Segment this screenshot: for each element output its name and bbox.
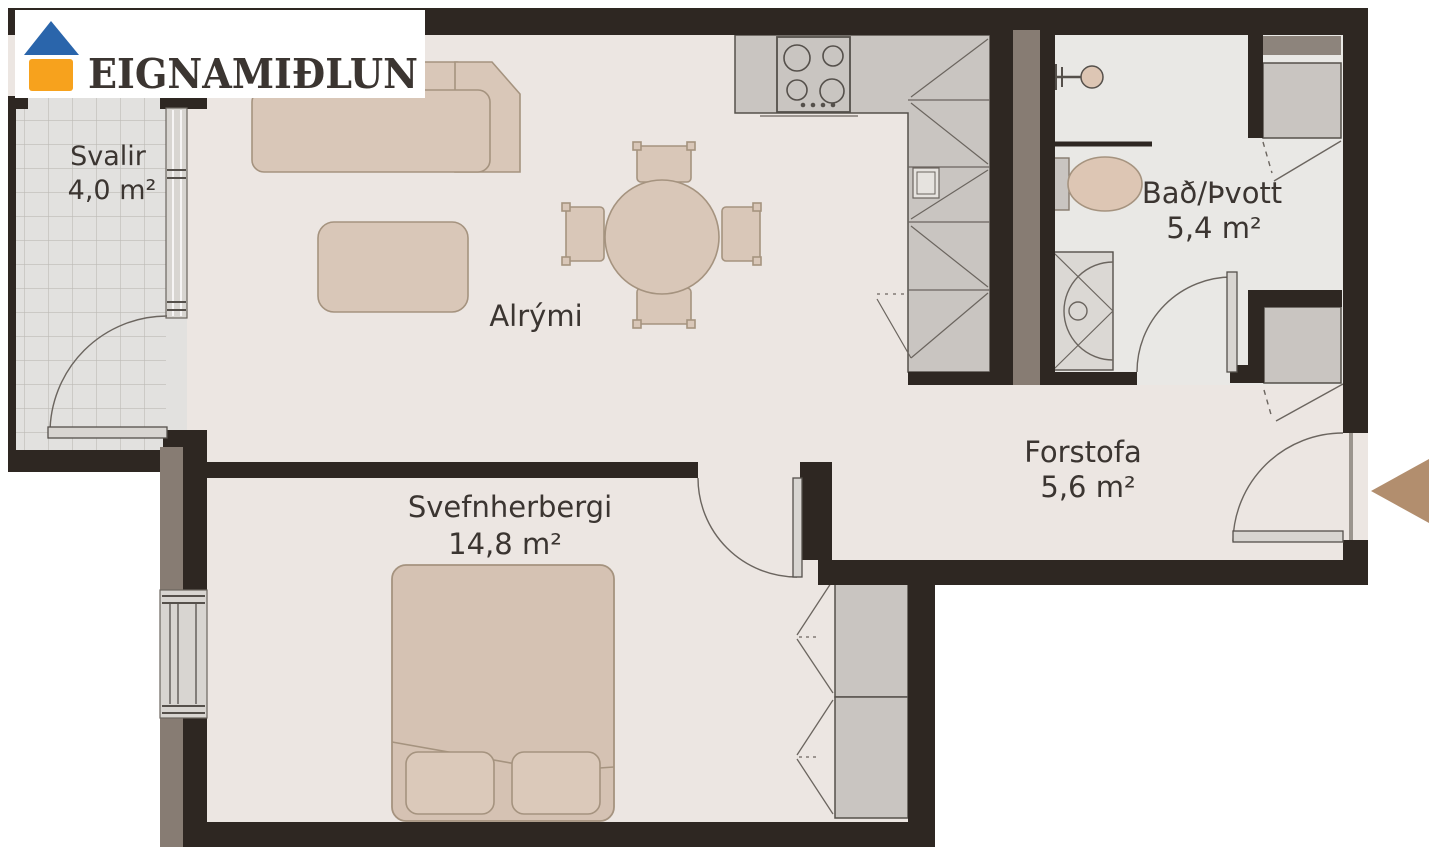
- wall-balcony-left: [8, 96, 16, 472]
- wall-bedroom-door-post: [800, 462, 832, 560]
- floors: [8, 8, 1368, 847]
- sofa-seat: [252, 90, 490, 172]
- entry-arrow-icon: [1371, 459, 1429, 523]
- wall-kitchen-bottom: [908, 372, 1003, 385]
- label-bad-area: 5,4 m²: [1166, 211, 1261, 245]
- wall-bedroom-left-lower: [183, 718, 207, 847]
- wall-bath-bottom: [1040, 372, 1137, 385]
- bath-closet: [1263, 63, 1341, 138]
- pillow-left: [406, 752, 494, 814]
- outer-strip-upper: [160, 447, 183, 590]
- label-svalir-area: 4,0 m²: [68, 175, 157, 206]
- wall-shaft-right: [1040, 30, 1055, 385]
- shaft: [1013, 30, 1040, 385]
- wall-bath-right-upper: [1248, 30, 1263, 138]
- wall-balcony-bottom: [8, 450, 163, 472]
- wall-bedroom-right: [908, 560, 935, 847]
- wall-kitchen-bath: [990, 30, 1013, 385]
- label-bad: Bað/Þvott: [1142, 176, 1282, 210]
- dining-table: [605, 180, 719, 294]
- floor-plan-drawing: Svalir 4,0 m² Alrými Bað/Þvott 5,4 m² Fo…: [0, 0, 1433, 867]
- wall-right-upper: [1343, 8, 1368, 433]
- logo: EIGNAMIÐLUN: [15, 10, 425, 98]
- duct-box: [1263, 36, 1341, 55]
- logo-brand-text: EIGNAMIÐLUN: [88, 50, 418, 98]
- label-svefnherbergi-area: 14,8 m²: [448, 527, 562, 561]
- entry-threshold: [1349, 433, 1353, 540]
- label-forstofa-area: 5,6 m²: [1040, 470, 1135, 504]
- wall-forstofa-bottom: [818, 560, 1368, 585]
- toilet: [1053, 157, 1142, 211]
- balcony-window: [166, 108, 187, 318]
- coffee-table: [318, 222, 468, 312]
- floor-plan: Svalir 4,0 m² Alrými Bað/Þvott 5,4 m² Fo…: [0, 0, 1433, 867]
- entry-closet: [1264, 307, 1341, 383]
- label-alrymi: Alrými: [489, 299, 582, 333]
- bedroom-window: [160, 590, 207, 718]
- label-svalir: Svalir: [70, 141, 147, 172]
- label-forstofa: Forstofa: [1024, 435, 1142, 469]
- pillow-right: [512, 752, 600, 814]
- outer-strip-lower: [160, 718, 183, 847]
- house-body: [29, 59, 73, 91]
- wall-bedroom-bottom: [183, 822, 935, 847]
- wall-bedroom-left-upper: [183, 447, 207, 590]
- wall-entry-closet-top: [1248, 290, 1342, 307]
- wall-bedroom-top: [183, 462, 698, 478]
- washing-machine: [1053, 252, 1113, 370]
- label-svefnherbergi: Svefnherbergi: [408, 490, 612, 524]
